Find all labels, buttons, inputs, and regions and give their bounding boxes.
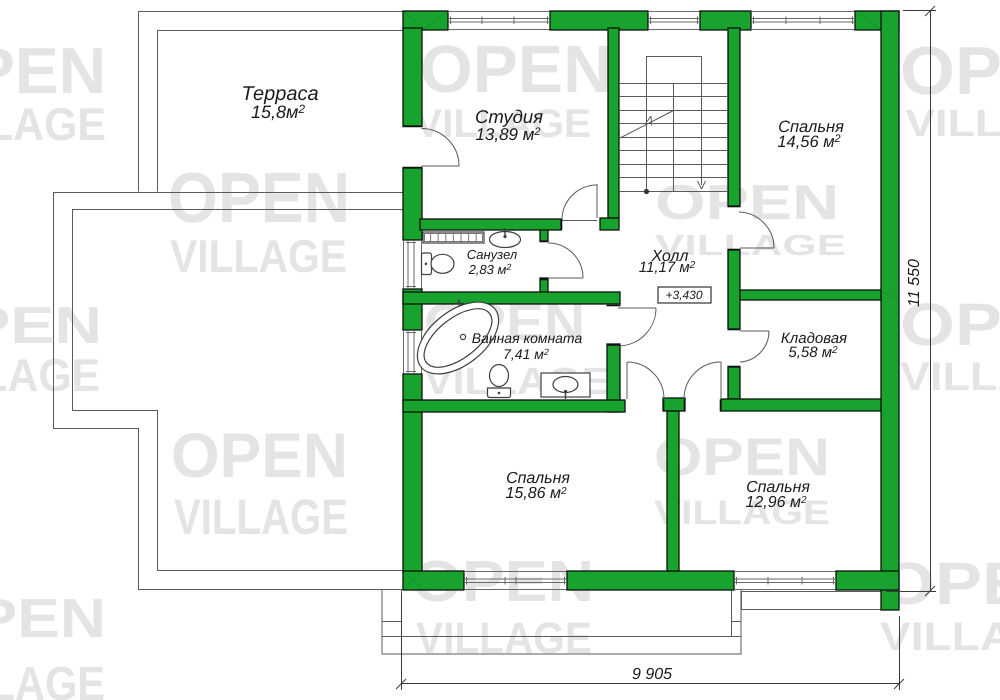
svg-text:+3,430: +3,430 <box>665 288 702 302</box>
svg-text:15,8м2: 15,8м2 <box>251 102 305 122</box>
svg-text:OPEN: OPEN <box>0 297 102 355</box>
svg-text:VILLAGE: VILLAGE <box>880 615 1000 659</box>
svg-text:VILLAGE: VILLAGE <box>416 614 592 663</box>
svg-text:Санузел: Санузел <box>467 247 518 262</box>
svg-text:OPEN: OPEN <box>420 32 612 107</box>
svg-text:VILLAGE: VILLAGE <box>174 489 348 545</box>
svg-text:11,17 м2: 11,17 м2 <box>639 259 696 276</box>
svg-text:9 905: 9 905 <box>632 666 672 683</box>
svg-text:VILLAGE: VILLAGE <box>170 230 347 282</box>
svg-text:13,89 м2: 13,89 м2 <box>475 125 540 144</box>
svg-text:OPEN: OPEN <box>0 34 106 107</box>
svg-text:VILLAGE: VILLAGE <box>0 349 100 401</box>
svg-text:VILLAGE: VILLAGE <box>0 658 105 700</box>
svg-text:OPEN: OPEN <box>655 176 839 230</box>
svg-text:Ванная комната: Ванная комната <box>472 330 583 346</box>
svg-text:12,96 м2: 12,96 м2 <box>745 494 806 511</box>
svg-text:15,86 м2: 15,86 м2 <box>505 485 566 502</box>
svg-text:OPEN: OPEN <box>900 33 1000 109</box>
svg-text:VILLAGE: VILLAGE <box>900 355 1000 399</box>
svg-text:11 550: 11 550 <box>906 259 923 307</box>
svg-text:5,58 м2: 5,58 м2 <box>788 344 838 361</box>
svg-text:OPEN: OPEN <box>168 159 350 238</box>
svg-text:7,41 м2: 7,41 м2 <box>503 346 549 362</box>
svg-text:VILLAGE: VILLAGE <box>0 98 106 150</box>
svg-text:OPEN: OPEN <box>171 421 348 491</box>
svg-text:OPEN: OPEN <box>0 587 106 649</box>
svg-text:14,56 м2: 14,56 м2 <box>777 133 840 151</box>
svg-text:Студия: Студия <box>475 106 543 127</box>
svg-text:VILLAGE: VILLAGE <box>905 103 1000 145</box>
svg-text:2,83 м2: 2,83 м2 <box>468 262 512 277</box>
